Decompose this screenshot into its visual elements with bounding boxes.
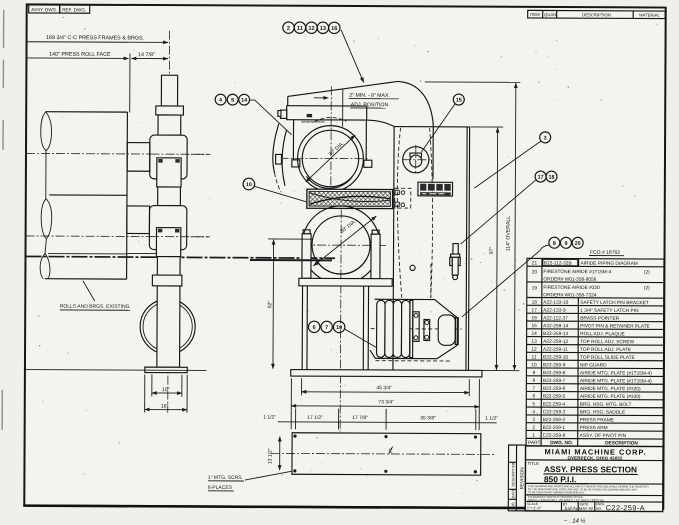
svg-text:16: 16 bbox=[331, 26, 337, 32]
svg-text:35 3/8": 35 3/8" bbox=[420, 415, 436, 421]
svg-text:B22-259-1: B22-259-1 bbox=[543, 425, 566, 431]
svg-text:FCO.# 18762: FCO.# 18762 bbox=[590, 250, 620, 256]
svg-text:12: 12 bbox=[531, 347, 537, 353]
svg-text:A22-133-10: A22-133-10 bbox=[543, 300, 568, 306]
svg-text:TOP ROLL SLIDE PLATE: TOP ROLL SLIDE PLATE bbox=[580, 355, 635, 361]
svg-text:140" PRESS ROLL FACE: 140" PRESS ROLL FACE bbox=[49, 52, 111, 58]
svg-text:Jud Au: Jud Au bbox=[563, 506, 579, 512]
svg-text:18: 18 bbox=[548, 175, 554, 181]
svg-text:FRACTL ± 1/64 DECML ± .005 A: FRACTL ± 1/64 DECML ± .005 ANGLR ± 1/2° … bbox=[528, 498, 604, 502]
svg-text:9: 9 bbox=[533, 370, 536, 376]
svg-text:FIRESTONE AIRIDE #320: FIRESTONE AIRIDE #320 bbox=[543, 285, 600, 291]
svg-text:ASSY. PRESS SECTION: ASSY. PRESS SECTION bbox=[544, 465, 637, 474]
svg-text:A22-133-9: A22-133-9 bbox=[543, 308, 566, 314]
svg-text:2: 2 bbox=[287, 26, 290, 32]
svg-text:2" MIN. - 8" MAX.: 2" MIN. - 8" MAX. bbox=[349, 93, 390, 99]
svg-text:KEEP HANDS CLEAR OF GUARD: KEEP HANDS CLEAR OF GUARD bbox=[301, 120, 325, 124]
svg-text:QUAN: QUAN bbox=[544, 12, 556, 17]
svg-text:17 7/8": 17 7/8" bbox=[352, 415, 368, 421]
svg-text:850 P.I.I.: 850 P.I.I. bbox=[544, 474, 577, 484]
svg-text:(2): (2) bbox=[644, 269, 650, 275]
svg-text:A22-259-14: A22-259-14 bbox=[543, 323, 568, 329]
svg-text:15: 15 bbox=[456, 98, 462, 104]
svg-text:OVERPECK, OHIO 45055: OVERPECK, OHIO 45055 bbox=[568, 455, 624, 460]
svg-text:B22-259-6: B22-259-6 bbox=[543, 386, 566, 392]
svg-text:TO BE USED IN ANY MANNER WHATS: TO BE USED IN ANY MANNER WHATSOEVER. bbox=[528, 490, 585, 494]
svg-text:AIRIDE MTG. PLATE (#1T15M-4): AIRIDE MTG. PLATE (#1T15M-4) bbox=[580, 378, 652, 384]
svg-text:ROLLS AND BRGS. EXISTING: ROLLS AND BRGS. EXISTING bbox=[60, 304, 130, 310]
svg-text:B22-259-8: B22-259-8 bbox=[543, 370, 566, 376]
svg-text:B22-259-10: B22-259-10 bbox=[543, 354, 568, 360]
svg-text:BRG. HSG. MTG. BOLT: BRG. HSG. MTG. BOLT bbox=[580, 402, 632, 408]
svg-text:97": 97" bbox=[489, 246, 495, 254]
svg-text:14: 14 bbox=[241, 98, 247, 104]
svg-text:19: 19 bbox=[532, 285, 538, 291]
svg-text:7: 7 bbox=[533, 386, 536, 392]
svg-text:13: 13 bbox=[320, 26, 326, 32]
svg-text:7: 7 bbox=[325, 325, 328, 331]
svg-text:13: 13 bbox=[531, 339, 537, 345]
svg-text:NO.: NO. bbox=[511, 501, 515, 507]
svg-text:1" MTG. SCRS.: 1" MTG. SCRS. bbox=[208, 475, 243, 481]
svg-text:6-PLACES: 6-PLACES bbox=[208, 485, 233, 491]
svg-text:BRASS POINTER: BRASS POINTER bbox=[580, 316, 619, 322]
svg-text:8: 8 bbox=[533, 378, 536, 384]
svg-text:REF. DWG.: REF. DWG. bbox=[62, 7, 86, 12]
svg-text:A22-112-37: A22-112-37 bbox=[543, 315, 568, 321]
svg-text:AIRIDE PIPING DIAGRAM: AIRIDE PIPING DIAGRAM bbox=[580, 261, 637, 267]
svg-text:B22-112-32B: B22-112-32B bbox=[544, 260, 572, 266]
svg-text:BY: BY bbox=[563, 502, 568, 506]
svg-text:BRG. HSG. SADDLE: BRG. HSG. SADDLE bbox=[580, 409, 625, 415]
svg-text:C22-259-8: C22-259-8 bbox=[543, 433, 566, 439]
svg-text:8: 8 bbox=[553, 241, 556, 247]
svg-text:PRESS ARM: PRESS ARM bbox=[580, 425, 608, 431]
svg-text:B22-259-5: B22-259-5 bbox=[543, 394, 566, 400]
svg-text:TOP ROLL ADJ. SCREW: TOP ROLL ADJ. SCREW bbox=[580, 339, 635, 345]
svg-text:16: 16 bbox=[532, 315, 538, 321]
svg-text:B22-259-2: B22-259-2 bbox=[543, 417, 566, 423]
svg-text:(2): (2) bbox=[644, 285, 650, 291]
svg-text:DESCRIPTION: DESCRIPTION bbox=[582, 12, 611, 17]
svg-text:20: 20 bbox=[532, 269, 538, 275]
svg-text:AIRIDE MTG. PLATE (#320): AIRIDE MTG. PLATE (#320) bbox=[580, 386, 641, 392]
svg-text:AIRIDE MTG. PLATE (#1T15M-4): AIRIDE MTG. PLATE (#1T15M-4) bbox=[580, 370, 652, 376]
svg-text:14 7/8": 14 7/8" bbox=[138, 52, 155, 58]
svg-text:TOP ROLL ADJ. PLATE: TOP ROLL ADJ. PLATE bbox=[580, 347, 631, 353]
svg-text:11: 11 bbox=[532, 354, 537, 360]
svg-text:DESCRIPTION: DESCRIPTION bbox=[511, 461, 515, 486]
svg-text:1: 1 bbox=[532, 433, 535, 439]
svg-text:4: 4 bbox=[219, 98, 222, 104]
svg-text:TITLE: TITLE bbox=[527, 461, 539, 466]
svg-text:SAFETY LATCH PIN BRACKET: SAFETY LATCH PIN BRACKET bbox=[580, 300, 649, 306]
svg-text:10: 10 bbox=[246, 182, 252, 188]
svg-text:MAY 92: MAY 92 bbox=[579, 506, 594, 511]
svg-text:15: 15 bbox=[531, 323, 537, 329]
svg-text:5: 5 bbox=[231, 98, 234, 104]
svg-text:3: 3 bbox=[532, 417, 535, 423]
svg-text:19: 19 bbox=[336, 325, 342, 331]
svg-text:B22-259-13: B22-259-13 bbox=[543, 331, 568, 337]
svg-text:18: 18 bbox=[532, 300, 538, 306]
svg-text:ORDER# W01-358-7324: ORDER# W01-358-7324 bbox=[543, 292, 596, 298]
svg-text:B22-259-7: B22-259-7 bbox=[543, 378, 566, 384]
svg-text:DWG. NO.: DWG. NO. bbox=[550, 440, 573, 446]
svg-text:MATERIAL: MATERIAL bbox=[639, 13, 660, 18]
svg-text:4: 4 bbox=[532, 409, 535, 415]
svg-text:PIVOT PIN & RETAINER PLATE: PIVOT PIN & RETAINER PLATE bbox=[580, 323, 650, 329]
svg-text:1"=1'-0": 1"=1'-0" bbox=[527, 506, 542, 511]
svg-text:6: 6 bbox=[532, 394, 535, 400]
svg-text:17: 17 bbox=[538, 175, 544, 181]
svg-text:DATE: DATE bbox=[511, 488, 515, 498]
svg-text:11: 11 bbox=[297, 26, 303, 32]
svg-text:PART: PART bbox=[528, 440, 540, 446]
svg-text:C22-259-A: C22-259-A bbox=[606, 503, 645, 512]
svg-text:45 3/4": 45 3/4" bbox=[376, 385, 392, 391]
svg-text:52": 52" bbox=[267, 301, 273, 309]
svg-text:PRESS FRAME: PRESS FRAME bbox=[580, 417, 614, 423]
svg-text:2: 2 bbox=[532, 425, 535, 431]
svg-text:73 3/4": 73 3/4" bbox=[378, 399, 394, 405]
svg-text:10": 10" bbox=[162, 387, 170, 393]
svg-text:6: 6 bbox=[313, 325, 316, 331]
svg-text:13 1/2": 13 1/2" bbox=[267, 448, 273, 464]
svg-text:ASSY. OF PIVOT PIN: ASSY. OF PIVOT PIN bbox=[580, 433, 627, 439]
svg-text:20: 20 bbox=[575, 241, 581, 247]
svg-text:114" OVERALL: 114" OVERALL bbox=[506, 216, 512, 252]
svg-text:DWG.: DWG. bbox=[596, 502, 605, 506]
svg-text:NIP GUARD: NIP GUARD bbox=[580, 362, 607, 368]
svg-text:B22-259-9: B22-259-9 bbox=[543, 362, 566, 368]
svg-text:1 1/2": 1 1/2" bbox=[485, 416, 498, 422]
svg-text:16": 16" bbox=[161, 404, 169, 410]
svg-text:ASSY. DWG.: ASSY. DWG. bbox=[31, 7, 57, 12]
svg-text:FIRESTONE AIRIDE #1T15M-4: FIRESTONE AIRIDE #1T15M-4 bbox=[543, 269, 611, 275]
svg-text:ITEM: ITEM bbox=[530, 12, 541, 17]
svg-text:5: 5 bbox=[532, 401, 535, 407]
svg-text:21: 21 bbox=[532, 260, 538, 266]
svg-text:1 3/4" SAFETY LATCH PIN: 1 3/4" SAFETY LATCH PIN bbox=[580, 308, 639, 314]
svg-text:3: 3 bbox=[544, 135, 547, 141]
svg-text:AIRIDE MTG. PLATE (#320): AIRIDE MTG. PLATE (#320) bbox=[580, 394, 641, 400]
svg-text:17 1/2": 17 1/2" bbox=[307, 415, 323, 421]
svg-text:A22-259-11: A22-259-11 bbox=[543, 347, 568, 353]
svg-text:A22-259-12: A22-259-12 bbox=[543, 339, 568, 345]
svg-text:12: 12 bbox=[308, 26, 314, 32]
svg-text:ADJ. POSITION: ADJ. POSITION bbox=[351, 102, 389, 108]
svg-text:17: 17 bbox=[532, 308, 538, 314]
svg-text:C22-259-3: C22-259-3 bbox=[543, 409, 566, 415]
svg-text:NO.: NO. bbox=[596, 507, 602, 511]
svg-text:B22-259-4: B22-259-4 bbox=[543, 401, 566, 407]
svg-text:ROLL ADJ. PLAQUE: ROLL ADJ. PLAQUE bbox=[580, 331, 625, 337]
svg-text:9: 9 bbox=[564, 241, 567, 247]
svg-text:1 1/2": 1 1/2" bbox=[263, 415, 276, 421]
svg-text:~ . 14 ½: ~ . 14 ½ bbox=[564, 518, 586, 525]
svg-text:10: 10 bbox=[531, 362, 537, 368]
svg-text:ORDER# W01-358-9056: ORDER# W01-358-9056 bbox=[543, 276, 596, 282]
svg-text:REVISION: REVISION bbox=[519, 467, 524, 489]
svg-text:169 3/4" C-C PRESS FRAMES &: 169 3/4" C-C PRESS FRAMES & BRGS. bbox=[46, 35, 144, 41]
svg-text:14: 14 bbox=[531, 331, 537, 337]
